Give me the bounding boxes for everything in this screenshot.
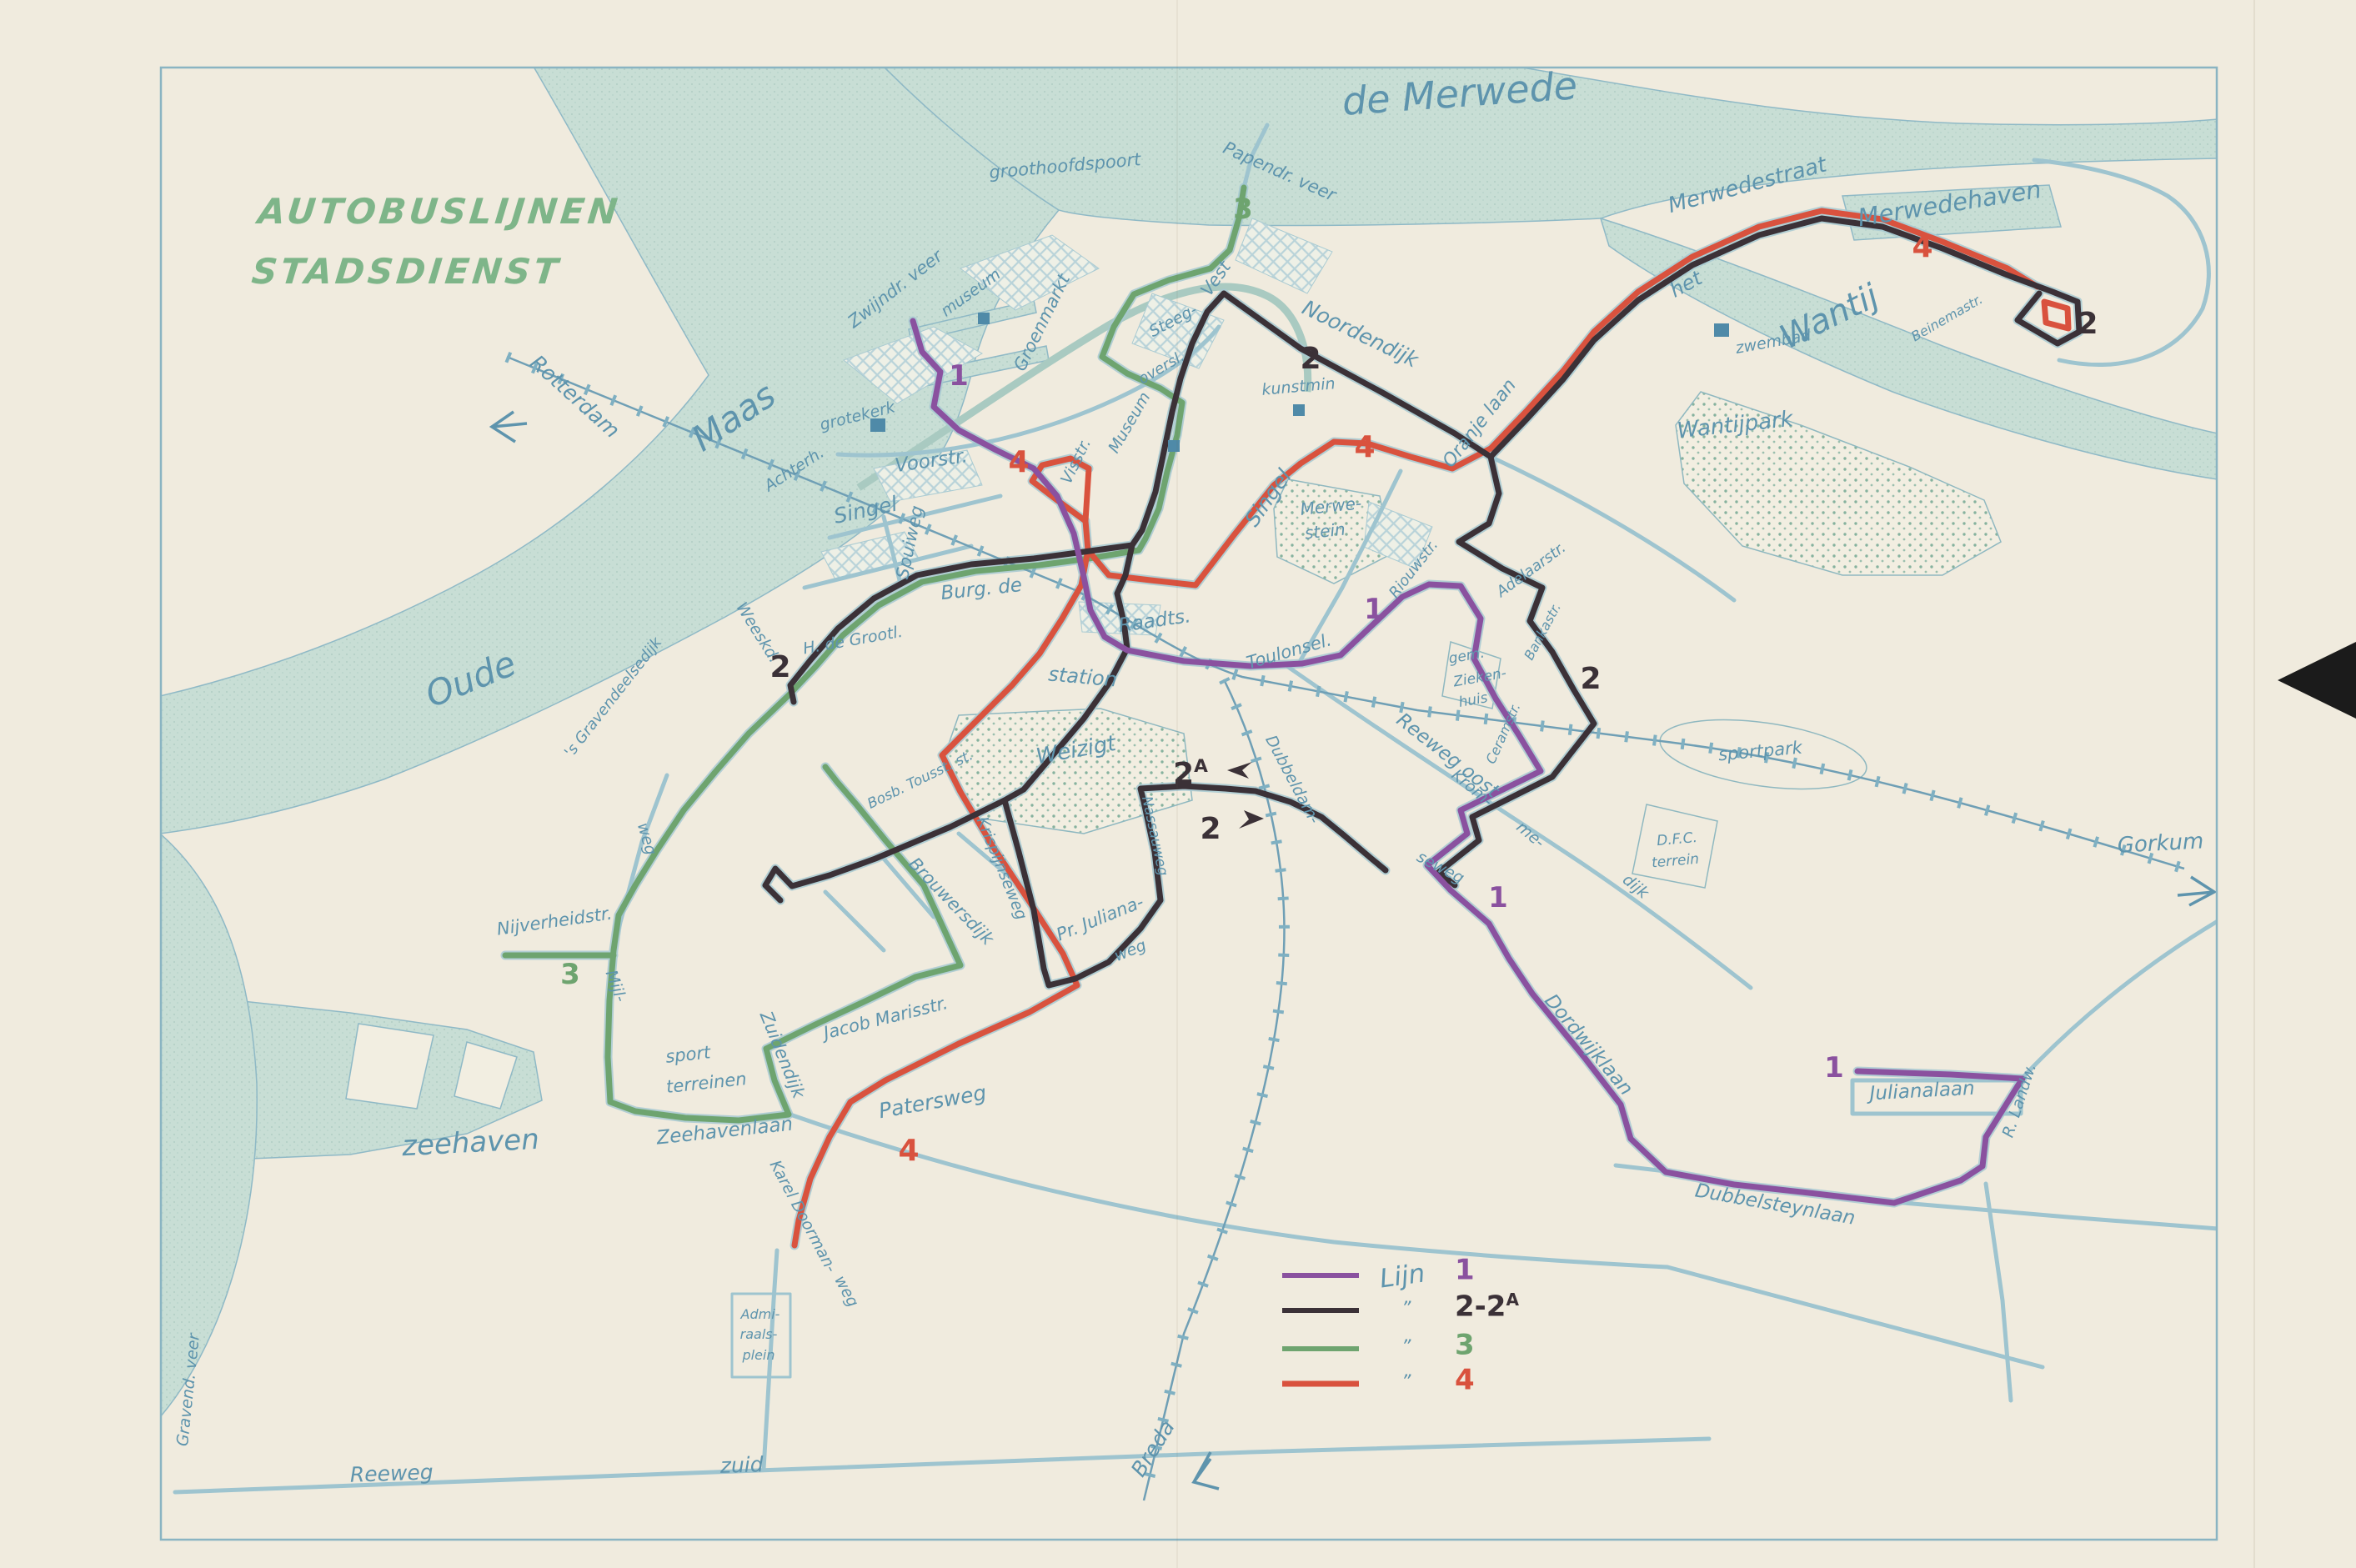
route-number-1-4: 1 [1488, 881, 1508, 914]
map-label-gorkum: Gorkum [2117, 829, 2204, 858]
map-label-prjulianaweg: weg [1111, 936, 1149, 965]
building-marker-zwembad [1714, 323, 1729, 337]
route-number-1-2: 1 [949, 359, 969, 393]
legend-swatch-line2 [1280, 1306, 1363, 1315]
direction-arrow-rotterdam [492, 412, 527, 442]
legend-swatch-line3 [1280, 1345, 1363, 1353]
route-number-4-13: 4 [1354, 430, 1375, 464]
map-label-gem2: Zieken- [1451, 665, 1508, 691]
direction-arrow-gorkum [2178, 877, 2214, 905]
legend-ditto-1: ” [1401, 1299, 1411, 1320]
map-label-sportpark: sportpark [1717, 738, 1804, 765]
route-number-2-9: 2 [1580, 662, 1601, 696]
building-marker-kunstmin [1293, 404, 1305, 416]
map-label-kunstmin: kunstmin [1261, 374, 1336, 399]
legend-heading: Lijn [1378, 1258, 1427, 1294]
legend-number-line2: 2-2A [1455, 1290, 1555, 1323]
route-number-2-7: 2 [2077, 307, 2098, 341]
map-label-reeweg: Reeweg [349, 1460, 434, 1486]
paper-edge-line [2253, 0, 2255, 1568]
water-left-edge [160, 834, 257, 1417]
map-title-line2: STADSDIENST [248, 242, 617, 302]
route-number-2-11: 2 [1200, 812, 1221, 846]
legend: Lijn 1 ” 2-2A ” 3 ” 4 [1255, 1246, 1588, 1421]
map-label-rotterdam: Rotterdam [525, 350, 624, 443]
route-number-2-8: 2 [769, 650, 790, 684]
building-marker-museum [978, 313, 990, 324]
map-label-gem3: huis [1457, 689, 1489, 711]
map-title: AUTOBUSLIJNEN STADSDIENST [248, 182, 624, 302]
legend-number-line3: 3 [1455, 1328, 1555, 1361]
map-label-station: station [1047, 662, 1118, 691]
map-label-dordwijklaan: Dordwijklaan [1540, 990, 1637, 1100]
map-label-patersweg: Patersweg [877, 1080, 989, 1123]
legend-number-line4: 4 [1455, 1363, 1555, 1396]
route-number-4-15: 4 [898, 1134, 919, 1168]
route-number-2-6: 2 [1300, 342, 1321, 376]
direction-arrow-breda [1194, 1452, 1219, 1489]
legend-swatch-line1 [1280, 1271, 1363, 1280]
map-label-merwestein2: stein [1304, 519, 1346, 544]
map-title-line1: AUTOBUSLIJNEN [255, 182, 624, 242]
registration-triangle [2278, 642, 2356, 719]
map-label-adm2: raals- [740, 1326, 778, 1342]
route-number-3-1: 3 [560, 958, 580, 991]
map-label-sportterr2: terreinen [665, 1069, 748, 1097]
map-label-dfc1: D.F.C. [1656, 829, 1697, 849]
route-number-3-0: 3 [1233, 193, 1253, 226]
legend-number-line1: 1 [1455, 1253, 1555, 1286]
map-label-adm1: Admi- [740, 1306, 780, 1322]
route-number-1-3: 1 [1364, 593, 1384, 626]
legend-ditto-3: ” [1401, 1372, 1411, 1393]
legend-ditto-2: ” [1401, 1337, 1411, 1358]
map-label-breda: Breda [1126, 1415, 1180, 1480]
map-label-beinemastr: Beinemastr. [1908, 291, 1985, 344]
map-label-julianalaan: Julianalaan [1866, 1078, 1975, 1105]
map-label-adm3: plein [741, 1347, 774, 1363]
route-number-4-12: 4 [1008, 445, 1029, 479]
map-label-sportterr1: sport [664, 1042, 712, 1067]
map-label-zuid: zuid [719, 1452, 764, 1478]
map-label-nijverheidstr: Nijverheidstr. [495, 903, 613, 939]
map-label-kdweg: weg [830, 1273, 862, 1310]
legend-swatch-line4 [1280, 1380, 1363, 1388]
scanned-bus-map: de MerwedeMaasOudehetWantijzwembadWantij… [0, 0, 2356, 1568]
route-number-4-14: 4 [1912, 230, 1932, 264]
map-label-dfc2: terrein [1651, 851, 1700, 872]
route-2-arrow [1239, 810, 1264, 829]
paper-fold-line [1176, 0, 1178, 1568]
route-number-1-5: 1 [1824, 1051, 1844, 1085]
map-label-zeehaven: zeehaven [400, 1123, 540, 1164]
route-2a-arrow [1227, 762, 1252, 779]
map-label-krom3: dijk [1619, 870, 1653, 903]
